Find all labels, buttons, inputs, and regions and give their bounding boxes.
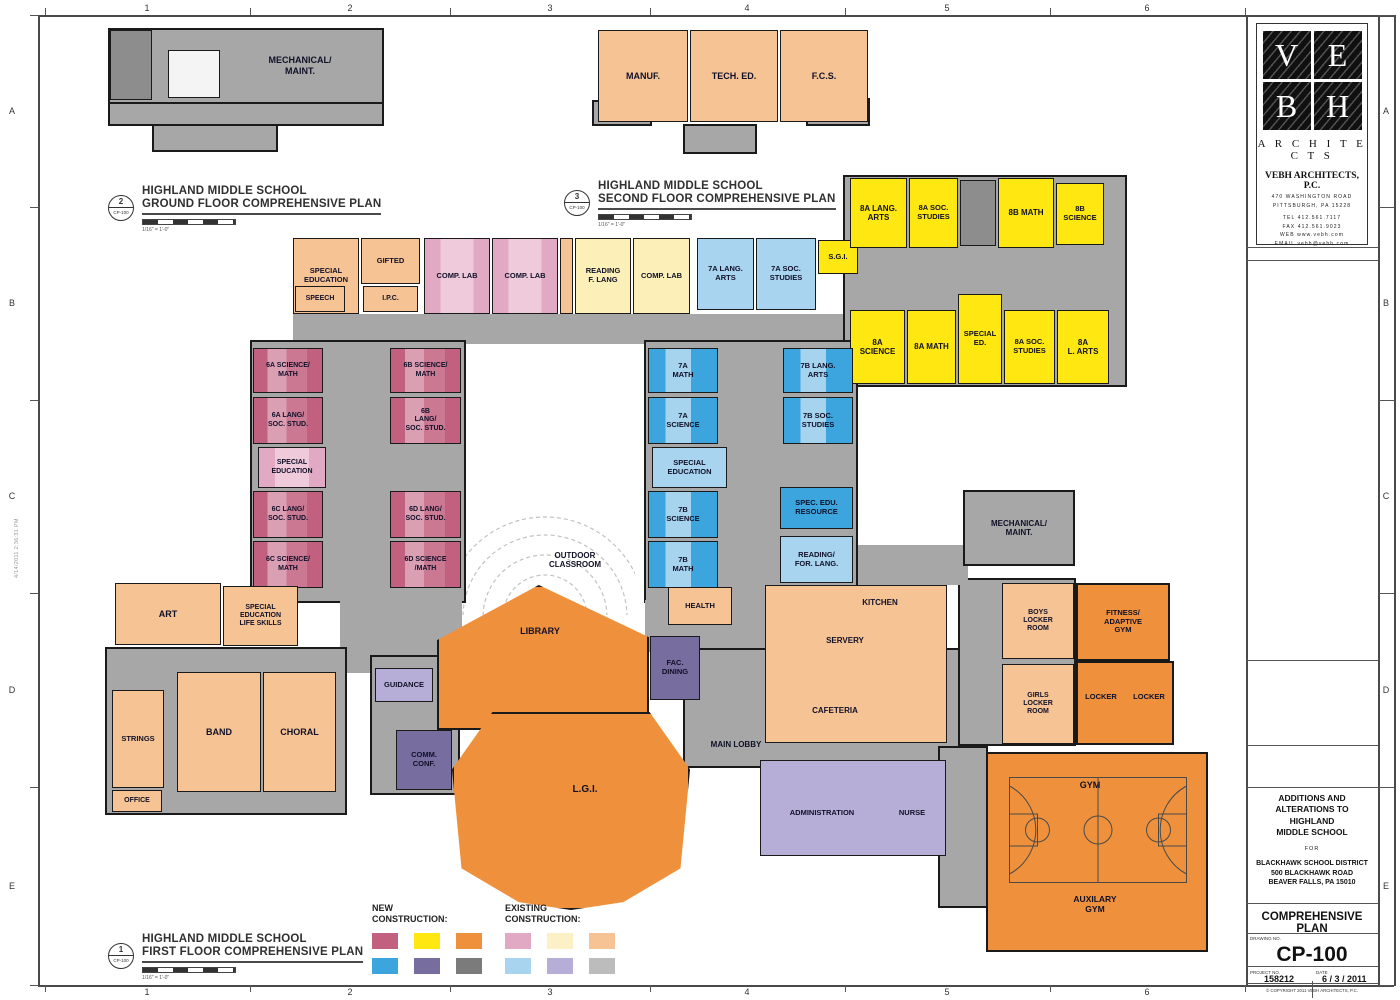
vebh-logo: V E B H A R C H I T E C T S VEBH ARCHITE… xyxy=(1256,23,1368,245)
existing-construction-swatch-2 xyxy=(547,933,573,949)
new-construction-swatch-6 xyxy=(456,958,482,974)
project-no-value: 158212 xyxy=(1264,974,1294,984)
legend-new-swatches xyxy=(372,933,482,974)
decor-layer-over xyxy=(0,0,1400,1000)
titleblock-divider xyxy=(1246,660,1378,661)
detail-sheet: CP-100 xyxy=(565,203,589,212)
scale-text: 1/16" = 1'-0" xyxy=(142,227,381,233)
titleblock-divider xyxy=(1246,260,1378,261)
titleblock-divider xyxy=(1246,745,1378,746)
existing-construction-swatch-1 xyxy=(505,933,531,949)
firm-fax: FAX 412.561.9023 xyxy=(1257,223,1367,232)
for-label: FOR xyxy=(1246,846,1378,852)
plan-title-text: HIGHLAND MIDDLE SCHOOLGROUND FLOOR COMPR… xyxy=(142,185,381,215)
plan-title-3: 3CP-100HIGHLAND MIDDLE SCHOOLSECOND FLOO… xyxy=(564,180,836,228)
sheet-title: COMPREHENSIVE PLAN xyxy=(1246,911,1378,935)
graphic-scale-bar xyxy=(142,219,236,225)
detail-reference-bubble: 2CP-100 xyxy=(108,195,134,221)
firm-address-2: PITTSBURGH, PA 15228 xyxy=(1257,202,1367,211)
firm-address: 470 WASHINGTON ROAD PITTSBURGH, PA 15228… xyxy=(1257,193,1367,248)
existing-construction-swatch-5 xyxy=(547,958,573,974)
new-construction-swatch-4 xyxy=(372,958,398,974)
project-identification: ADDITIONS AND ALTERATIONS TO HIGHLAND MI… xyxy=(1246,793,1378,888)
plan-title-2: 2CP-100HIGHLAND MIDDLE SCHOOLGROUND FLOO… xyxy=(108,185,381,233)
basketball-court xyxy=(1008,776,1188,884)
new-construction-swatch-5 xyxy=(414,958,440,974)
existing-construction-swatch-6 xyxy=(589,958,615,974)
drawing-no-label: DRAWING NO. xyxy=(1250,936,1281,941)
firm-web: WEB www.vebh.com xyxy=(1257,231,1367,240)
vebh-logo-grid: V E B H xyxy=(1257,31,1367,130)
legend-existing-swatches xyxy=(505,933,615,974)
titleblock-divider xyxy=(1246,903,1378,904)
graphic-scale-bar xyxy=(598,214,692,220)
detail-number: 3 xyxy=(565,191,589,203)
architects-wordmark: A R C H I T E C T S xyxy=(1257,138,1367,162)
plan-title-text: HIGHLAND MIDDLE SCHOOLFIRST FLOOR COMPRE… xyxy=(142,933,363,963)
logo-letter-e: E xyxy=(1314,31,1362,79)
graphic-scale-bar xyxy=(142,967,236,973)
logo-letter-h: H xyxy=(1314,82,1362,130)
drawing-sheet: 112233445566AABBCCDDEE 4/14/2011 2:36:31… xyxy=(0,0,1400,1000)
detail-number: 2 xyxy=(109,196,133,208)
firm-address-1: 470 WASHINGTON ROAD xyxy=(1257,193,1367,202)
new-construction-swatch-2 xyxy=(414,933,440,949)
titleblock-divider xyxy=(1246,247,1378,248)
legend-existing-construction: EXISTING CONSTRUCTION: xyxy=(505,903,615,974)
detail-sheet: CP-100 xyxy=(109,956,133,965)
project-title: ADDITIONS AND ALTERATIONS TO HIGHLAND MI… xyxy=(1246,793,1378,839)
firm-name: VEBH ARCHITECTS, P.C. xyxy=(1257,171,1367,191)
logo-letter-b: B xyxy=(1263,82,1311,130)
detail-reference-bubble: 3CP-100 xyxy=(564,190,590,216)
scale-text: 1/16" = 1'-0" xyxy=(142,975,363,981)
new-construction-swatch-3 xyxy=(456,933,482,949)
detail-sheet: CP-100 xyxy=(109,208,133,217)
title-block: V E B H A R C H I T E C T S VEBH ARCHITE… xyxy=(1246,15,1378,985)
legend-existing-label: EXISTING CONSTRUCTION: xyxy=(505,903,615,926)
plan-title-text: HIGHLAND MIDDLE SCHOOLSECOND FLOOR COMPR… xyxy=(598,180,836,210)
logo-letter-v: V xyxy=(1263,31,1311,79)
scale-text: 1/16" = 1'-0" xyxy=(598,222,836,228)
legend-new-construction: NEW CONSTRUCTION: xyxy=(372,903,482,974)
firm-tel: TEL 412.561.7117 xyxy=(1257,214,1367,223)
legend-new-label: NEW CONSTRUCTION: xyxy=(372,903,482,926)
detail-number: 1 xyxy=(109,944,133,956)
new-construction-swatch-1 xyxy=(372,933,398,949)
date-value: 6 / 3 / 2011 xyxy=(1322,974,1367,984)
drawing-number: CP-100 xyxy=(1246,943,1378,967)
plan-title-1: 1CP-100HIGHLAND MIDDLE SCHOOLFIRST FLOOR… xyxy=(108,933,363,981)
copyright-line: © COPYRIGHT 2011 VEBH ARCHITECTS, P.C. xyxy=(1246,988,1378,993)
titleblock-divider xyxy=(1246,787,1378,788)
client-block: BLACKHAWK SCHOOL DISTRICT 500 BLACKHAWK … xyxy=(1246,859,1378,888)
detail-reference-bubble: 1CP-100 xyxy=(108,943,134,969)
existing-construction-swatch-3 xyxy=(589,933,615,949)
existing-construction-swatch-4 xyxy=(505,958,531,974)
